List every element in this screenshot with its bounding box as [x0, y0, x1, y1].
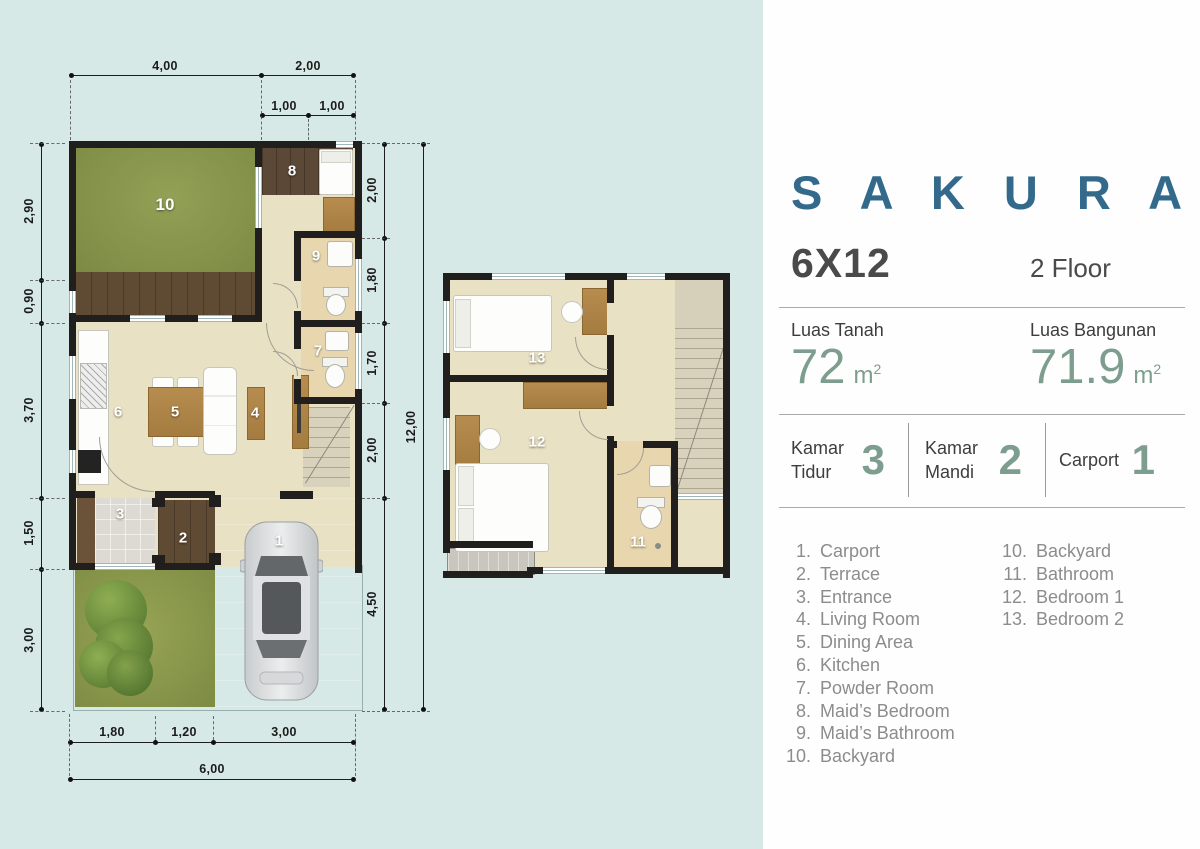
dim-left-2: 0,90 [22, 288, 36, 314]
room-label-backyard: 10 [156, 195, 175, 215]
desk-bedroom2 [582, 288, 610, 335]
desk-bedroom1 [455, 415, 480, 469]
wall-stub [209, 553, 221, 565]
dim-top2-1: 1,00 [271, 99, 297, 113]
window2-left-2 [443, 418, 450, 470]
stat-bathrooms-value: 2 [999, 436, 1038, 484]
land-area-unit: m2 [854, 362, 882, 389]
tree [77, 578, 163, 702]
dim-line-right-total [423, 143, 424, 711]
ext-line [362, 498, 390, 499]
yard-slider-window [255, 167, 262, 228]
wall-stub [209, 495, 221, 507]
legend-item: 4.Living Room [775, 608, 985, 631]
kitchen-window [69, 356, 76, 399]
land-area: Luas Tanah 72m2 [791, 320, 884, 392]
wall2-hall-lower [607, 375, 614, 567]
dim-left-1: 2,90 [22, 198, 36, 224]
ext-line [30, 143, 65, 144]
ext-line [362, 143, 430, 144]
ext-line [30, 569, 65, 570]
ext-line [355, 80, 356, 140]
wall2-bottom-left [443, 541, 533, 548]
dim-bottom-1: 1,80 [99, 725, 125, 739]
bed-single-pillow [455, 299, 471, 348]
wall2-top [443, 273, 730, 280]
ext-line [30, 711, 65, 712]
info-panel: S A K U R A 6X12 2 Floor Luas Tanah 72m2… [763, 0, 1200, 849]
legend-item: 5.Dining Area [775, 631, 985, 654]
room-label-dining: 5 [171, 404, 179, 421]
dim-dot [211, 740, 216, 745]
ext-line [155, 716, 156, 740]
left-window-1 [69, 291, 76, 313]
ext-line [30, 323, 65, 324]
window2-top-2 [627, 273, 665, 280]
ext-line [362, 323, 390, 324]
kitchen-stove [78, 450, 101, 473]
ext-line [362, 238, 390, 239]
stat-carport-value: 1 [1132, 436, 1171, 484]
powder-toilet [325, 364, 345, 388]
building-area-unit: m2 [1133, 362, 1161, 389]
dim-right-2: 1,80 [365, 267, 379, 293]
room-label-entrance: 3 [116, 506, 124, 523]
legend-right: 10.Backyard 11.Bathroom 12.Bedroom 1 13.… [991, 540, 1191, 631]
plan-floors: 2 Floor [1030, 253, 1111, 284]
room-label-carport: 1 [275, 533, 283, 550]
dim-line-left [41, 143, 42, 711]
ext-line [69, 714, 70, 776]
dim-line-top [70, 75, 355, 76]
legend-item: 6.Kitchen [775, 654, 985, 677]
ext-line [261, 80, 262, 140]
room-label-living: 4 [251, 405, 259, 422]
wall-powder-bottom [294, 397, 362, 404]
dim-bottom-2: 1,20 [171, 725, 197, 739]
legend-item: 13.Bedroom 2 [991, 608, 1191, 631]
dim-right-total: 12,00 [404, 411, 418, 444]
room-label-bedroom2: 13 [529, 350, 546, 367]
kitchen-sink [80, 363, 107, 409]
land-area-number: 72 [791, 340, 846, 394]
legend-item: 9.Maid’s Bathroom [775, 722, 985, 745]
room-label-kitchen: 6 [114, 404, 122, 421]
deck-slider-window [130, 315, 165, 322]
plan-title: S A K U R A [791, 165, 1195, 220]
window2-stair-ledge [678, 493, 723, 500]
divider [779, 307, 1185, 308]
stat-carport: Carport 1 [1059, 423, 1171, 497]
bath-toilet [640, 505, 662, 529]
window2-left-1 [443, 301, 450, 353]
dim-left-4: 1,50 [22, 520, 36, 546]
divider [779, 414, 1185, 415]
wall2-bath-right [671, 441, 678, 567]
legend-item: 3.Entrance [775, 586, 985, 609]
stat-bedrooms-label: Kamar Tidur [791, 436, 855, 485]
window2-bottom [543, 567, 605, 574]
ext-line [362, 711, 430, 712]
door-gap-bedroom1 [607, 406, 614, 436]
room-label-bedroom1: 12 [529, 434, 546, 451]
dim-left-5: 3,00 [22, 627, 36, 653]
door-gap-entrance [95, 491, 155, 498]
legend-item: 11.Bathroom [991, 563, 1191, 586]
dim-left-3: 3,70 [22, 397, 36, 423]
dim-right-3: 1,70 [365, 350, 379, 376]
dim-top-2: 2,00 [295, 59, 321, 73]
wall2-bottom-outer [443, 571, 533, 578]
room-label-maid-bedroom: 8 [288, 163, 296, 180]
dim-line-bottom-total [69, 779, 355, 780]
divider [779, 507, 1185, 508]
maid-wardrobe [323, 197, 355, 233]
dim-line-right [384, 143, 385, 711]
ext-line [30, 498, 65, 499]
bath-sink [649, 465, 671, 487]
deck-slider-window [198, 315, 232, 322]
ext-line [70, 80, 71, 140]
left-window-2 [69, 450, 76, 473]
legend-item: 10.Backyard [775, 745, 985, 768]
room-label-maid-bathroom: 9 [312, 248, 320, 265]
wall2-room-sep [450, 375, 610, 382]
stat-bedrooms-value: 3 [862, 436, 901, 484]
legend-item: 12.Bedroom 1 [991, 586, 1191, 609]
sofa [203, 367, 237, 455]
ext-line [30, 280, 65, 281]
chair-bedroom1 [479, 428, 501, 450]
legend-left: 1.Carport 2.Terrace 3.Entrance 4.Living … [775, 540, 985, 768]
bed-double-pillow [458, 466, 474, 506]
land-area-value: 72m2 [791, 343, 884, 392]
stat-bedrooms: Kamar Tidur 3 [791, 423, 901, 497]
powder-sink [325, 331, 349, 351]
stat-carport-label: Carport [1059, 448, 1119, 472]
wall-top [69, 141, 362, 148]
building-area-number: 71.9 [1030, 340, 1125, 394]
dim-top-1: 4,00 [152, 59, 178, 73]
room-label-bathroom: 11 [630, 534, 646, 551]
second-stairs [675, 328, 723, 493]
stat-bathrooms: Kamar Mandi 2 [925, 423, 1038, 497]
ground-floor-plan: 10 8 9 7 6 5 4 3 2 1 [69, 141, 362, 710]
maidbath-window [355, 259, 362, 311]
dim-bottom-3: 3,00 [271, 725, 297, 739]
dim-dot [153, 740, 158, 745]
wall2-right [723, 273, 730, 578]
building-area-value: 71.9m2 [1030, 343, 1161, 392]
wall-deck [69, 315, 262, 322]
room-label-terrace: 2 [179, 530, 187, 547]
legend-item: 7.Powder Room [775, 677, 985, 700]
ext-line [308, 119, 309, 140]
dim-bottom-total: 6,00 [199, 762, 225, 776]
entrance-door [95, 563, 155, 570]
dim-right-1: 2,00 [365, 177, 379, 203]
legend-item: 8.Maid’s Bedroom [775, 700, 985, 723]
maid-bath-sink [327, 241, 353, 267]
dim-top2-2: 1,00 [319, 99, 345, 113]
wall-carport-stub [280, 491, 313, 499]
legend-item: 10.Backyard [991, 540, 1191, 563]
second-floor-plan: 13 12 11 [443, 273, 730, 578]
dim-dot [259, 73, 264, 78]
backyard-deck [75, 272, 262, 315]
maid-toilet [326, 294, 346, 316]
maidroom-window [336, 141, 353, 148]
ext-line [213, 716, 214, 740]
chair-bedroom2 [561, 301, 583, 323]
dim-right-4: 2,00 [365, 437, 379, 463]
wardrobe-bedroom1 [523, 382, 612, 409]
flyer-canvas: 10 8 9 7 6 5 4 3 2 1 [0, 0, 1200, 849]
building-area-label: Luas Bangunan [1030, 320, 1161, 341]
door-gap-bathroom [617, 441, 643, 448]
dim-dot [306, 113, 311, 118]
plan-size: 6X12 [791, 240, 891, 287]
dim-right-5: 4,50 [365, 591, 379, 617]
entrance-wood-strip [77, 498, 95, 568]
legend-item: 2.Terrace [775, 563, 985, 586]
window2-top-1 [492, 273, 565, 280]
building-area: Luas Bangunan 71.9m2 [1030, 320, 1161, 392]
wall-maidroom [294, 231, 362, 238]
stat-bathrooms-label: Kamar Mandi [925, 436, 989, 485]
door-gap-bedroom2 [607, 303, 614, 335]
ext-line [362, 403, 390, 404]
land-area-label: Luas Tanah [791, 320, 884, 341]
stat-divider [908, 423, 909, 497]
room-label-powder: 7 [314, 343, 322, 360]
maid-bed-pillow [321, 151, 351, 163]
ext-line [355, 714, 356, 776]
powder-window [355, 333, 362, 389]
stat-divider [1045, 423, 1046, 497]
room-entrance-floor [95, 498, 155, 565]
floor-drain [655, 543, 661, 549]
legend-item: 1.Carport [775, 540, 985, 563]
